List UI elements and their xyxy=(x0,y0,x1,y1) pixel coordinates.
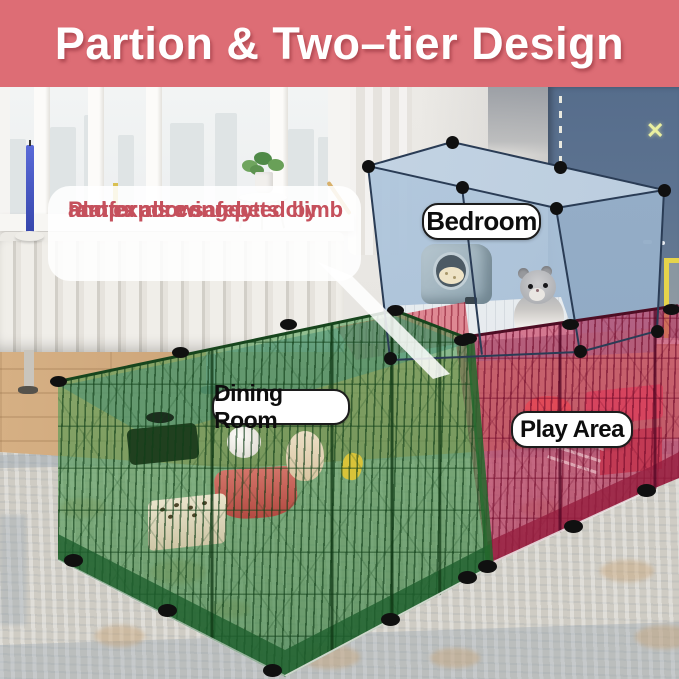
cage-edge-line xyxy=(331,324,334,651)
cage-foot xyxy=(478,560,497,573)
cube-corner-cap xyxy=(456,181,469,194)
callout-bubble: Platforms connected by ramps allowing pe… xyxy=(48,186,361,281)
cube-corner-cap xyxy=(554,161,567,174)
label-dining-room: Dining Room xyxy=(212,389,350,425)
cube-corner-cap xyxy=(550,202,563,215)
callout-line: and expore safely xyxy=(68,196,254,223)
cage-hardware xyxy=(0,0,679,679)
corner-cap xyxy=(50,376,67,387)
cage-foot xyxy=(637,484,656,497)
label-bedroom: Bedroom xyxy=(422,203,541,240)
cube-corner-cap xyxy=(384,352,397,365)
cube-edge-line xyxy=(368,141,453,167)
product-image: ✕ xyxy=(0,0,679,679)
corner-cap xyxy=(562,319,579,330)
label-play-area: Play Area xyxy=(511,411,633,448)
cage-foot xyxy=(64,554,83,567)
cube-corner-cap xyxy=(574,345,587,358)
cage-foot xyxy=(564,520,583,533)
corner-cap xyxy=(280,319,297,330)
banner-title: Partion & Two–tier Design xyxy=(55,18,624,70)
corner-cap xyxy=(454,335,471,346)
base-rail xyxy=(58,559,286,677)
cage-foot xyxy=(263,664,282,677)
cube-corner-cap xyxy=(362,160,375,173)
corner-cap xyxy=(172,347,189,358)
cube-edge-line xyxy=(556,189,664,209)
banner: Partion & Two–tier Design xyxy=(0,0,679,87)
pen-side-panel xyxy=(466,337,494,568)
cage-edge-line xyxy=(58,309,396,383)
cube-corner-cap xyxy=(446,136,459,149)
corner-cap xyxy=(663,304,679,315)
cage-foot xyxy=(458,571,477,584)
cage-foot xyxy=(381,613,400,626)
cube-edge-line xyxy=(580,330,658,353)
cage-foot xyxy=(158,604,177,617)
cube-corner-cap xyxy=(658,184,671,197)
cube-corner-cap xyxy=(651,325,664,338)
